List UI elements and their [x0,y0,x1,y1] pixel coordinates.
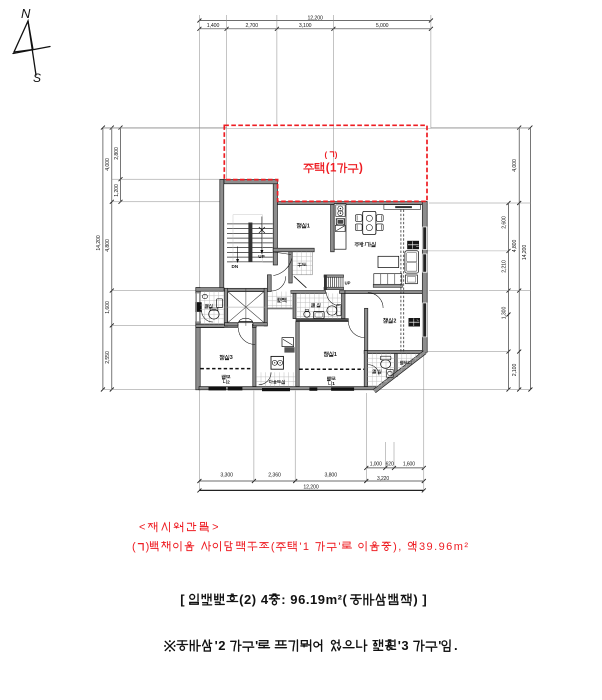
svg-text:N: N [21,6,31,21]
svg-text:1,000: 1,000 [370,462,382,468]
svg-text:2,600: 2,600 [502,216,508,229]
svg-text:UP: UP [258,254,264,259]
svg-text:4,000: 4,000 [512,159,518,172]
svg-text:4,000: 4,000 [105,158,111,171]
svg-text:) ]: ) ] [413,592,427,607]
svg-text:2: 2 [393,318,396,324]
svg-text:3,100: 3,100 [299,23,312,29]
svg-text:'2: '2 [215,638,227,653]
svg-text:4,800: 4,800 [512,240,518,253]
svg-text:': ' [255,638,259,653]
svg-text:4,800: 4,800 [105,239,111,252]
svg-text:3,220: 3,220 [377,476,389,482]
svg-text:<: < [139,522,148,534]
svg-text:1,400: 1,400 [207,23,220,29]
svg-text:1,200: 1,200 [114,184,120,197]
svg-text:2,700: 2,700 [246,23,259,29]
svg-text:1: 1 [332,381,335,387]
svg-text:39.96m²: 39.96m² [419,541,470,553]
svg-text:620: 620 [386,462,394,468]
svg-text:(1: (1 [326,163,337,175]
svg-text:2: 2 [227,379,230,385]
svg-text:2,800: 2,800 [114,147,120,160]
svg-text:): ) [335,151,338,160]
svg-text:3,800: 3,800 [325,473,338,479]
svg-text:): ) [359,163,363,175]
svg-text:(2) 4: (2) 4 [239,592,269,607]
svg-text:1,300: 1,300 [502,307,508,320]
svg-text:(: ( [271,541,276,553]
svg-text:': ' [438,638,442,653]
svg-text:14,200: 14,200 [522,245,528,260]
svg-text:2,550: 2,550 [105,351,111,364]
svg-text:1: 1 [307,223,310,229]
svg-text:DN: DN [232,264,239,269]
svg-text:.: . [454,638,458,653]
svg-text:): ) [146,541,150,553]
svg-text:'3: '3 [398,638,410,653]
svg-text:2,360: 2,360 [268,473,281,479]
svg-text:1,600: 1,600 [105,301,111,314]
svg-text:12,200: 12,200 [308,15,323,21]
svg-text:UP: UP [345,280,351,285]
svg-text:),: ), [393,541,403,553]
svg-text:>: > [212,522,221,534]
svg-text:2,100: 2,100 [512,364,518,377]
svg-text:2,210: 2,210 [502,260,508,273]
svg-text:[: [ [180,592,185,607]
svg-text:(: ( [325,151,328,160]
svg-text:1: 1 [334,352,337,358]
svg-text:3,300: 3,300 [220,473,233,479]
svg-text:': ' [338,541,342,553]
svg-text:14,200: 14,200 [96,235,102,250]
svg-text:S: S [33,71,41,85]
svg-text:12,200: 12,200 [303,484,318,490]
svg-text:1,600: 1,600 [403,462,415,468]
svg-text:5,000: 5,000 [376,23,389,29]
svg-text:: 96.19m²(: : 96.19m²( [281,592,347,607]
svg-text:3: 3 [230,355,233,361]
svg-text:(: ( [132,541,136,553]
svg-text:'1: '1 [299,541,310,553]
